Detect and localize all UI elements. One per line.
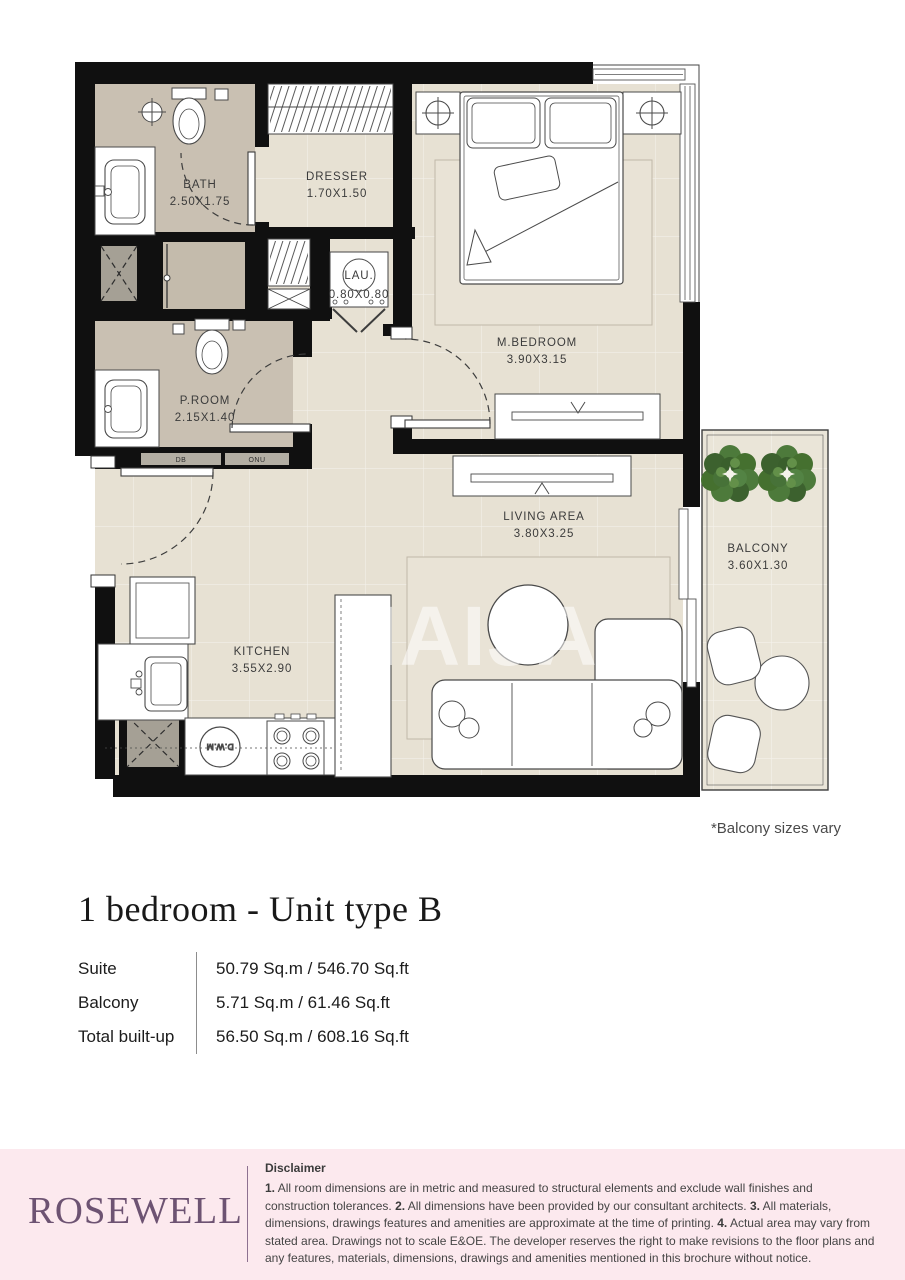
row-label: Total built-up	[78, 1027, 196, 1047]
brochure-page: DB ONU	[0, 0, 905, 1280]
floor-plan: DB ONU	[75, 62, 830, 797]
db-panel-label: DB	[176, 457, 187, 464]
room-dims-living: 3.80X3.25	[514, 528, 575, 540]
dwm-appliance-label: D.W.M	[206, 742, 234, 752]
room-dims-bath: 2.50X1.75	[170, 196, 231, 208]
row-label: Suite	[78, 959, 196, 979]
room-label-laundry: LAU.	[344, 270, 373, 282]
room-dims-dresser: 1.70X1.50	[307, 188, 368, 200]
room-label-bedroom: M.BEDROOM	[497, 337, 577, 349]
page-title: 1 bedroom - Unit type B	[78, 888, 442, 930]
disclaimer: Disclaimer 1. All room dimensions are in…	[265, 1160, 877, 1267]
room-dims-bedroom: 3.90X3.15	[507, 354, 568, 366]
brand-logo: ROSEWELL	[28, 1189, 228, 1233]
disclaimer-heading: Disclaimer	[265, 1160, 877, 1177]
room-label-bath: BATH	[183, 179, 216, 191]
balcony-size-note: *Balcony sizes vary	[711, 820, 841, 837]
room-dims-balcony: 3.60X1.30	[728, 560, 789, 572]
row-value: 50.79 Sq.m / 546.70 Sq.ft	[197, 959, 409, 979]
row-label: Balcony	[78, 993, 196, 1013]
room-dims-kitchen: 3.55X2.90	[232, 663, 293, 675]
room-dims-powder: 2.15X1.40	[175, 412, 236, 424]
room-label-balcony: BALCONY	[727, 543, 788, 555]
utility-panels: DB ONU	[141, 453, 289, 465]
table-row-suite: Suite 50.79 Sq.m / 546.70 Sq.ft	[78, 952, 409, 986]
room-label-living: LIVING AREA	[503, 511, 584, 523]
onu-panel-label: ONU	[248, 457, 265, 464]
room-label-powder: P.ROOM	[180, 395, 231, 407]
floor-plan-drawing: DB ONU	[75, 62, 830, 797]
row-value: 56.50 Sq.m / 608.16 Sq.ft	[197, 1027, 409, 1047]
table-row-total: Total built-up 56.50 Sq.m / 608.16 Sq.ft	[78, 1020, 409, 1054]
table-row-balcony: Balcony 5.71 Sq.m / 61.46 Sq.ft	[78, 986, 409, 1020]
footer-divider	[247, 1166, 248, 1262]
footer: ROSEWELL Disclaimer 1. All room dimensio…	[0, 1149, 905, 1280]
area-table: Suite 50.79 Sq.m / 546.70 Sq.ft Balcony …	[78, 952, 409, 1054]
row-value: 5.71 Sq.m / 61.46 Sq.ft	[197, 993, 409, 1013]
room-label-kitchen: KITCHEN	[234, 646, 291, 658]
room-dims-laundry: 0.80X0.80	[329, 289, 390, 301]
disclaimer-text: 1. All room dimensions are in metric and…	[265, 1180, 877, 1267]
room-label-dresser: DRESSER	[306, 171, 368, 183]
